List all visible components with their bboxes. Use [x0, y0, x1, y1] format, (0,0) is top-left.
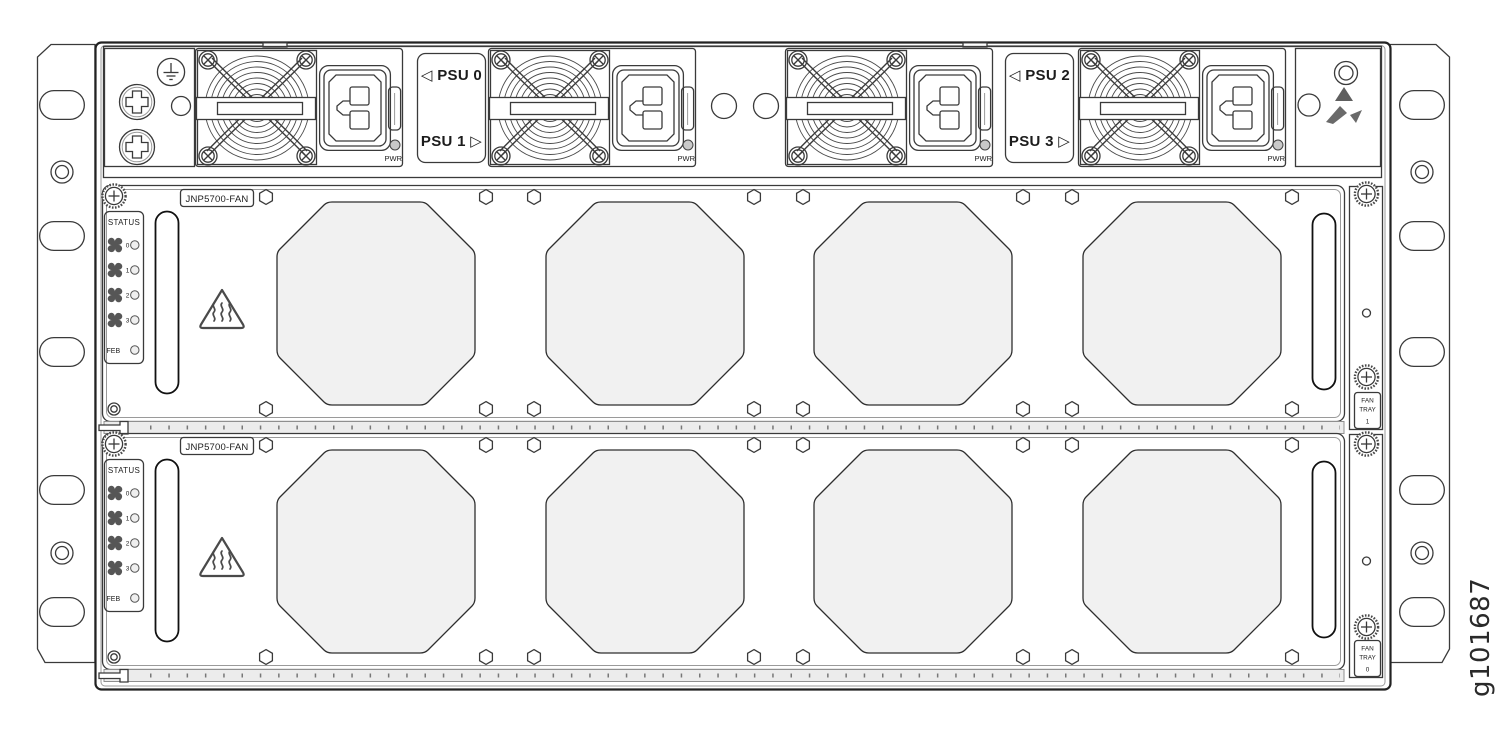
captive-thumbscrew-icon: [102, 432, 125, 455]
psu0-slot-label: ◁ PSU 0: [421, 67, 482, 84]
diagram-canvas: PWR ◁ PSU 0 PSU 1 ▷ PWR PWR ◁ PSU 2 PSU …: [0, 0, 1501, 737]
rack-ear-right-plate: [1390, 45, 1450, 663]
pwr-led-label-psu1: PWR: [678, 154, 696, 163]
rack-ear-left-plate: [38, 45, 96, 663]
fan-status-led: [131, 489, 139, 497]
rack-ear-left: [38, 45, 96, 663]
fan-status-led: [131, 564, 139, 572]
fan-status-led: [131, 539, 139, 547]
tray-tag-line-2: TRAY: [1359, 655, 1376, 662]
fan-id-label: 2: [126, 540, 130, 547]
feb-label: FEB: [107, 596, 121, 603]
pwr-led-label-psu2: PWR: [975, 154, 993, 163]
fan-id-label: 0: [126, 490, 130, 497]
tray-tag-line-1: FAN: [1361, 646, 1374, 653]
fan-id-label: 0: [126, 242, 130, 249]
handle-recess-left: [156, 212, 179, 394]
fan-id-label: 3: [126, 317, 130, 324]
figure-id: g101687: [1466, 578, 1496, 697]
model-label: JNP5700-FAN: [186, 442, 249, 453]
psu2-slot-label: ◁ PSU 2: [1009, 67, 1070, 84]
feb-status-led: [131, 594, 139, 602]
handle-recess-right: [1313, 214, 1336, 390]
tray-tag-line-2: TRAY: [1359, 407, 1376, 414]
pwr-led-label-psu3: PWR: [1268, 154, 1286, 163]
psu-slot-label-plate-0: ◁ PSU 0 PSU 1 ▷: [418, 54, 486, 163]
psu3-slot-label: PSU 3 ▷: [1009, 133, 1070, 150]
fan-status-led: [131, 266, 139, 274]
tray-tag-line-1: FAN: [1361, 398, 1374, 405]
fan-id-label: 3: [126, 565, 130, 572]
status-title: STATUS: [108, 466, 140, 475]
captive-thumbscrew-icon: [102, 184, 125, 207]
chassis-rear-diagram: PWR ◁ PSU 0 PSU 1 ▷ PWR PWR ◁ PSU 2 PSU …: [0, 0, 1501, 737]
rack-ear-right: [1390, 45, 1450, 663]
handle-recess-left: [156, 460, 179, 642]
fan-status-led: [131, 241, 139, 249]
feb-status-led: [131, 346, 139, 354]
card-guide-rail-middle: [99, 422, 1344, 435]
captive-thumbscrew-icon: [1355, 615, 1378, 638]
fan-status-led: [131, 316, 139, 324]
captive-thumbscrew-icon: [1355, 365, 1378, 388]
pwr-led-label-psu0: PWR: [385, 154, 403, 163]
psu-slot-label-plate-1: ◁ PSU 2 PSU 3 ▷: [1006, 54, 1074, 163]
handle-recess-right: [1313, 462, 1336, 638]
card-guide-rail-bottom: [99, 670, 1344, 683]
fan-id-label: 1: [126, 267, 130, 274]
fan-id-label: 1: [126, 515, 130, 522]
captive-thumbscrew-icon: [1355, 182, 1378, 205]
tray-tag-line-3: 0: [1366, 667, 1370, 674]
captive-thumbscrew-icon: [1355, 432, 1378, 455]
fan-status-led: [131, 291, 139, 299]
model-label: JNP5700-FAN: [186, 194, 249, 205]
status-title: STATUS: [108, 218, 140, 227]
psu1-slot-label: PSU 1 ▷: [421, 133, 482, 150]
fan-status-led: [131, 514, 139, 522]
fan-id-label: 2: [126, 292, 130, 299]
feb-label: FEB: [107, 348, 121, 355]
tray-tag-line-3: 1: [1366, 419, 1370, 426]
